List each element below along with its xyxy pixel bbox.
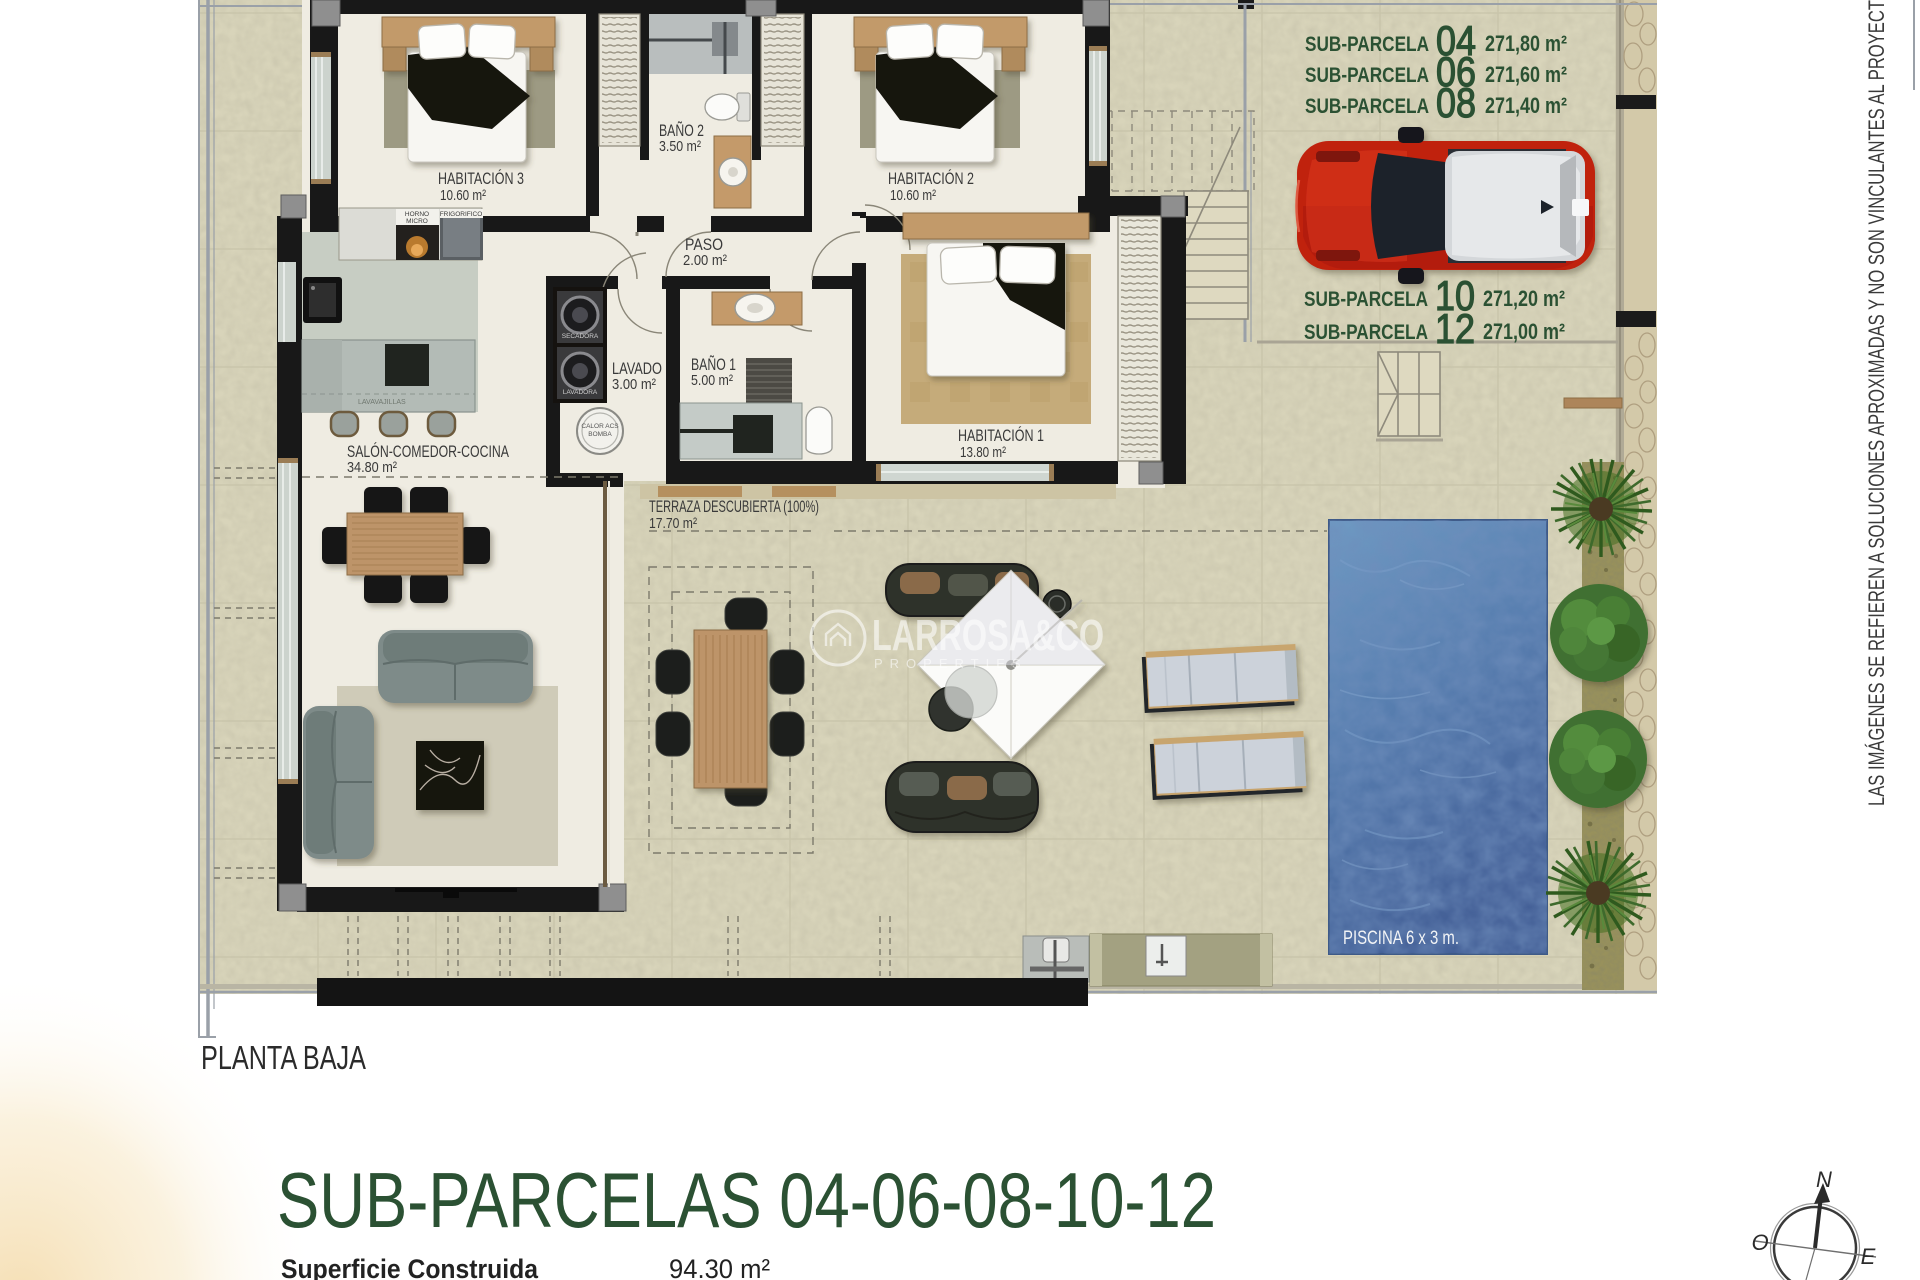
svg-text:2.00 m²: 2.00 m²	[683, 252, 727, 269]
svg-text:10.60 m²: 10.60 m²	[440, 187, 486, 204]
svg-text:271,80 m²: 271,80 m²	[1485, 31, 1567, 56]
svg-text:271,60 m²: 271,60 m²	[1485, 62, 1567, 87]
svg-text:LAVADORA: LAVADORA	[563, 389, 598, 396]
svg-text:5.00 m²: 5.00 m²	[691, 372, 733, 389]
svg-text:SUB-PARCELA: SUB-PARCELA	[1305, 95, 1429, 118]
svg-text:10.60 m²: 10.60 m²	[890, 187, 936, 204]
svg-text:Superficie Construida: Superficie Construida	[281, 1254, 539, 1280]
svg-text:PLANTA BAJA: PLANTA BAJA	[201, 1039, 366, 1076]
svg-text:HORNO: HORNO	[405, 211, 429, 218]
svg-text:SECADORA: SECADORA	[562, 333, 599, 340]
svg-text:94.30 m²: 94.30 m²	[669, 1254, 770, 1280]
svg-text:CALOR ACS: CALOR ACS	[581, 423, 619, 430]
svg-text:SUB-PARCELA: SUB-PARCELA	[1305, 64, 1429, 87]
svg-text:271,00 m²: 271,00 m²	[1483, 319, 1565, 344]
svg-text:13.80 m²: 13.80 m²	[960, 444, 1006, 461]
svg-text:E: E	[1861, 1244, 1876, 1269]
svg-text:PROPERTIES: PROPERTIES	[874, 656, 1028, 671]
svg-text:271,40 m²: 271,40 m²	[1485, 93, 1567, 118]
svg-text:34.80 m²: 34.80 m²	[347, 459, 397, 476]
svg-text:3.00 m²: 3.00 m²	[612, 376, 656, 393]
svg-text:LAS IMÁGENES SE REFIEREN A SOL: LAS IMÁGENES SE REFIEREN A SOLUCIONES AP…	[1864, 0, 1889, 806]
svg-text:MICRO: MICRO	[406, 218, 428, 225]
svg-text:3.50 m²: 3.50 m²	[659, 138, 701, 155]
svg-text:LARROSA&CO: LARROSA&CO	[872, 611, 1104, 660]
svg-text:12: 12	[1435, 305, 1475, 352]
svg-text:BOMBA: BOMBA	[588, 431, 612, 438]
svg-text:N: N	[1816, 1167, 1832, 1192]
svg-text:PISCINA 6 x 3 m.: PISCINA 6 x 3 m.	[1343, 928, 1459, 949]
svg-text:FRIGORIFICO: FRIGORIFICO	[440, 211, 483, 218]
svg-text:08: 08	[1436, 79, 1476, 126]
svg-text:LAVAVAJILLAS: LAVAVAJILLAS	[358, 399, 406, 406]
svg-text:O: O	[1751, 1230, 1768, 1255]
svg-text:HABITACIÓN 2: HABITACIÓN 2	[888, 169, 974, 188]
svg-text:SUB-PARCELA: SUB-PARCELA	[1304, 288, 1428, 311]
svg-text:HABITACIÓN 1: HABITACIÓN 1	[958, 426, 1044, 445]
svg-text:271,20 m²: 271,20 m²	[1483, 286, 1565, 311]
svg-text:17.70 m²: 17.70 m²	[649, 515, 697, 532]
svg-text:TERRAZA DESCUBIERTA (100%): TERRAZA DESCUBIERTA (100%)	[649, 497, 819, 516]
svg-text:SUB-PARCELA: SUB-PARCELA	[1305, 33, 1429, 56]
svg-text:SUB-PARCELAS 04-06-08-10-12: SUB-PARCELAS 04-06-08-10-12	[277, 1156, 1216, 1244]
svg-text:HABITACIÓN 3: HABITACIÓN 3	[438, 169, 524, 188]
svg-text:SUB-PARCELA: SUB-PARCELA	[1304, 321, 1428, 344]
